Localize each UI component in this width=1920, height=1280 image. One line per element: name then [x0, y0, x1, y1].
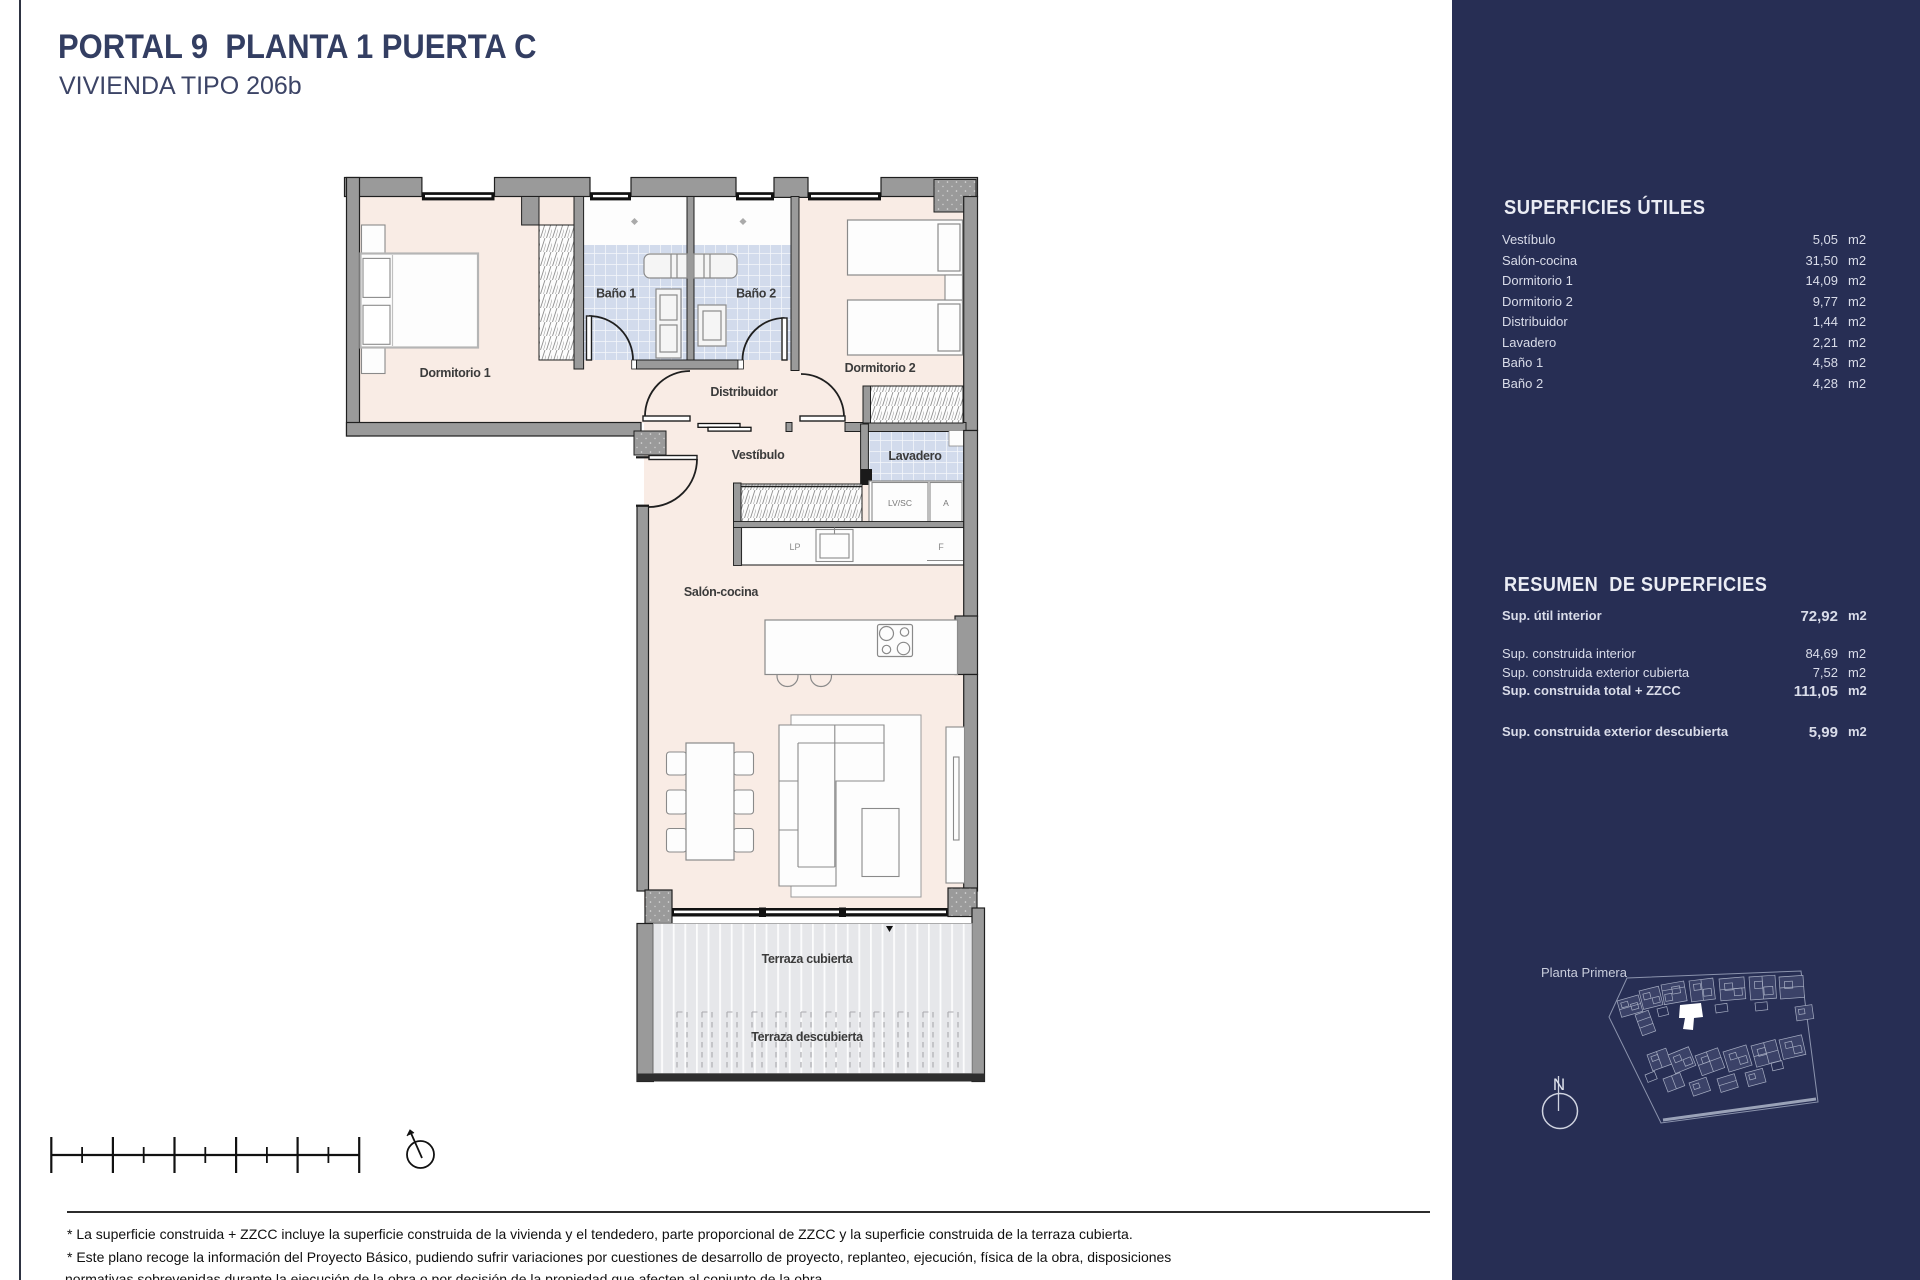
svg-text:Dormitorio 2: Dormitorio 2 — [845, 361, 916, 375]
svg-text:Baño 1: Baño 1 — [596, 287, 636, 301]
svg-text:Lavadero: Lavadero — [888, 449, 942, 463]
svg-text:Salón-cocina: Salón-cocina — [684, 585, 760, 599]
svg-text:Distribuidor: Distribuidor — [710, 385, 778, 399]
svg-text:N: N — [1553, 1075, 1565, 1094]
svg-text:Vestíbulo: Vestíbulo — [732, 448, 786, 462]
svg-text:Dormitorio 1: Dormitorio 1 — [420, 366, 491, 380]
svg-text:A: A — [943, 498, 949, 508]
svg-text:Baño 2: Baño 2 — [736, 287, 776, 301]
svg-text:F: F — [938, 542, 944, 552]
svg-text:Terraza cubierta: Terraza cubierta — [762, 952, 854, 966]
svg-text:LP: LP — [789, 542, 800, 552]
svg-text:Terraza descubierta: Terraza descubierta — [751, 1030, 864, 1044]
svg-text:LV/SC: LV/SC — [888, 498, 912, 508]
